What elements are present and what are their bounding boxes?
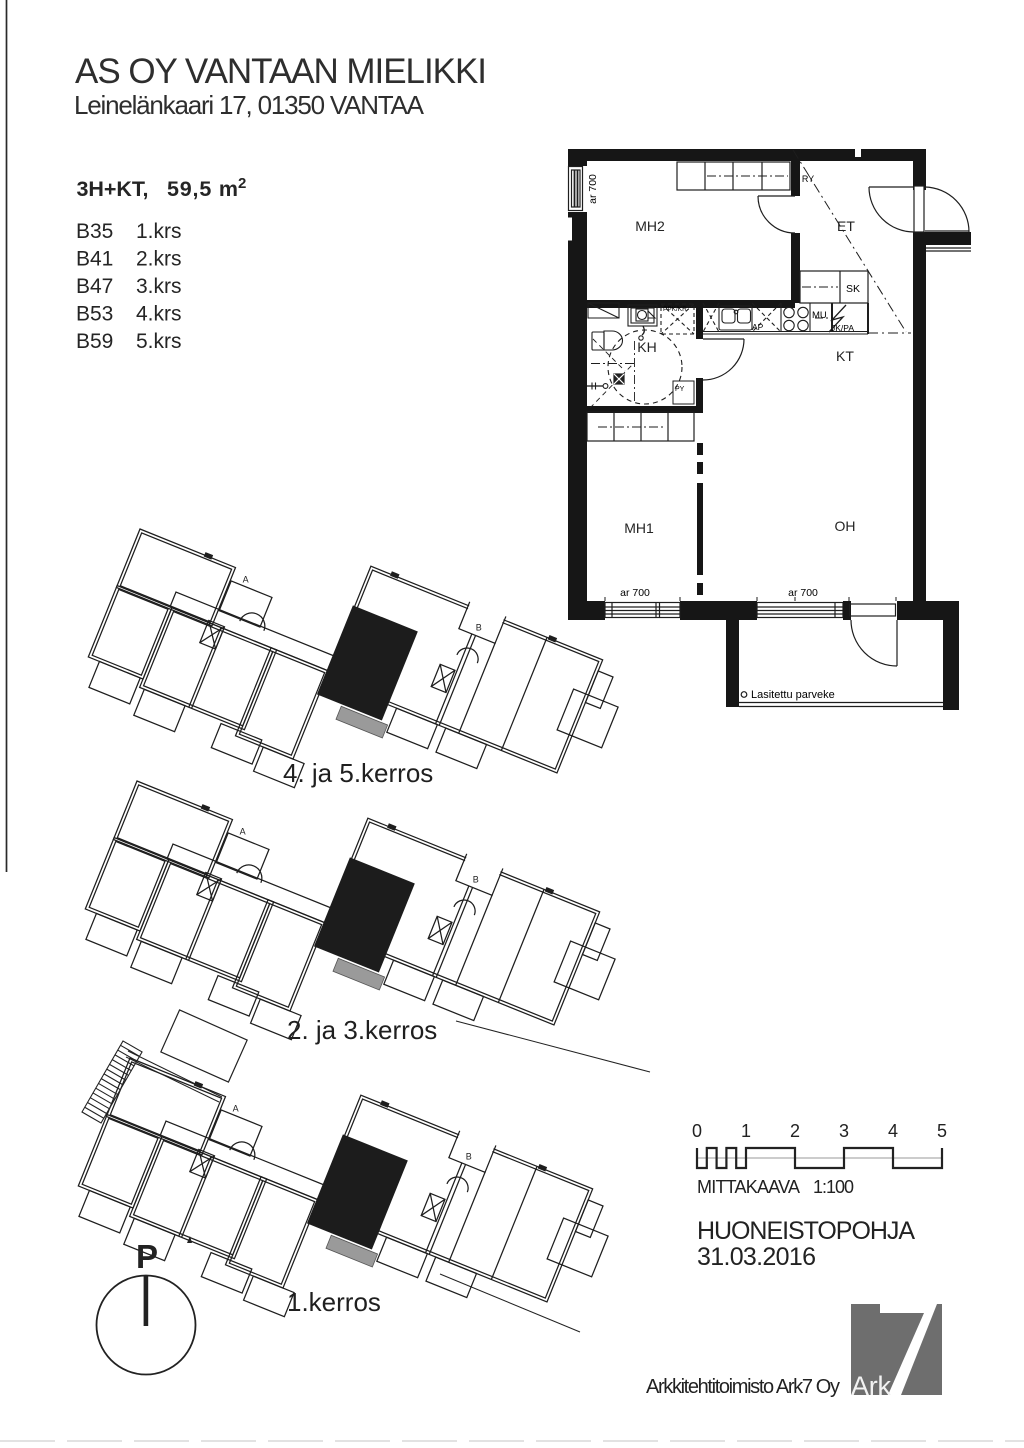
- svg-text:1.kerros: 1.kerros: [287, 1287, 381, 1317]
- svg-text:MH1: MH1: [624, 520, 654, 536]
- svg-text:MITTAKAAVA: MITTAKAAVA: [697, 1177, 800, 1197]
- svg-text:ar 700: ar 700: [788, 587, 818, 599]
- svg-text:B53: B53: [76, 303, 113, 326]
- svg-text:1.krs: 1.krs: [136, 220, 182, 243]
- svg-text:Arkkitehtitoimisto Ark7 Oy: Arkkitehtitoimisto Ark7 Oy: [646, 1376, 840, 1398]
- svg-text:ar 700: ar 700: [587, 174, 599, 204]
- svg-text:B47: B47: [76, 275, 113, 298]
- svg-text:MH2: MH2: [635, 218, 665, 234]
- svg-text:B59: B59: [76, 330, 113, 353]
- svg-text:4. ja 5.kerros: 4. ja 5.kerros: [283, 758, 433, 788]
- svg-text:2. ja 3.kerros: 2. ja 3.kerros: [287, 1015, 437, 1045]
- svg-text:HUONEISTOPOHJA: HUONEISTOPOHJA: [697, 1217, 915, 1245]
- svg-text:1:100: 1:100: [813, 1177, 854, 1197]
- svg-text:AP: AP: [752, 322, 764, 332]
- svg-text:ET: ET: [837, 218, 855, 234]
- svg-text:AS OY VANTAAN MIELIKKI: AS OY VANTAAN MIELIKKI: [75, 52, 487, 91]
- svg-text:Lasitettu parveke: Lasitettu parveke: [751, 689, 835, 701]
- svg-text:SK: SK: [846, 283, 860, 295]
- svg-text:4.krs: 4.krs: [136, 303, 182, 326]
- svg-text:PY: PY: [675, 386, 685, 393]
- svg-text:KH: KH: [637, 339, 656, 355]
- svg-text:2: 2: [238, 175, 246, 192]
- svg-text:RY: RY: [802, 174, 814, 184]
- svg-text:59,5 m: 59,5 m: [167, 177, 238, 201]
- svg-text:B41: B41: [76, 248, 113, 271]
- svg-text:Ark: Ark: [851, 1371, 892, 1401]
- svg-text:P: P: [136, 1238, 158, 1275]
- svg-text:2: 2: [790, 1121, 800, 1141]
- svg-text:B35: B35: [76, 220, 113, 243]
- svg-text:5.krs: 5.krs: [136, 330, 182, 353]
- svg-text:3H+KT,: 3H+KT,: [77, 177, 149, 201]
- svg-text:5: 5: [937, 1121, 947, 1141]
- svg-text:OH: OH: [835, 518, 856, 534]
- svg-text:31.03.2016: 31.03.2016: [697, 1243, 816, 1271]
- svg-text:4: 4: [888, 1121, 898, 1141]
- svg-text:ar 700: ar 700: [620, 587, 650, 599]
- svg-text:0: 0: [692, 1121, 702, 1141]
- svg-text:1: 1: [741, 1121, 751, 1141]
- svg-text:JK/PA: JK/PA: [831, 323, 854, 333]
- svg-text:PPK/KR: PPK/KR: [663, 306, 687, 313]
- svg-text:KT: KT: [836, 348, 854, 364]
- svg-text:2.krs: 2.krs: [136, 248, 182, 271]
- svg-text:3: 3: [839, 1121, 849, 1141]
- svg-text:3.krs: 3.krs: [136, 275, 182, 298]
- svg-text:Leinelänkaari 17, 01350 VANTA: Leinelänkaari 17, 01350 VANTAA: [74, 90, 425, 120]
- svg-text:MU: MU: [812, 310, 827, 321]
